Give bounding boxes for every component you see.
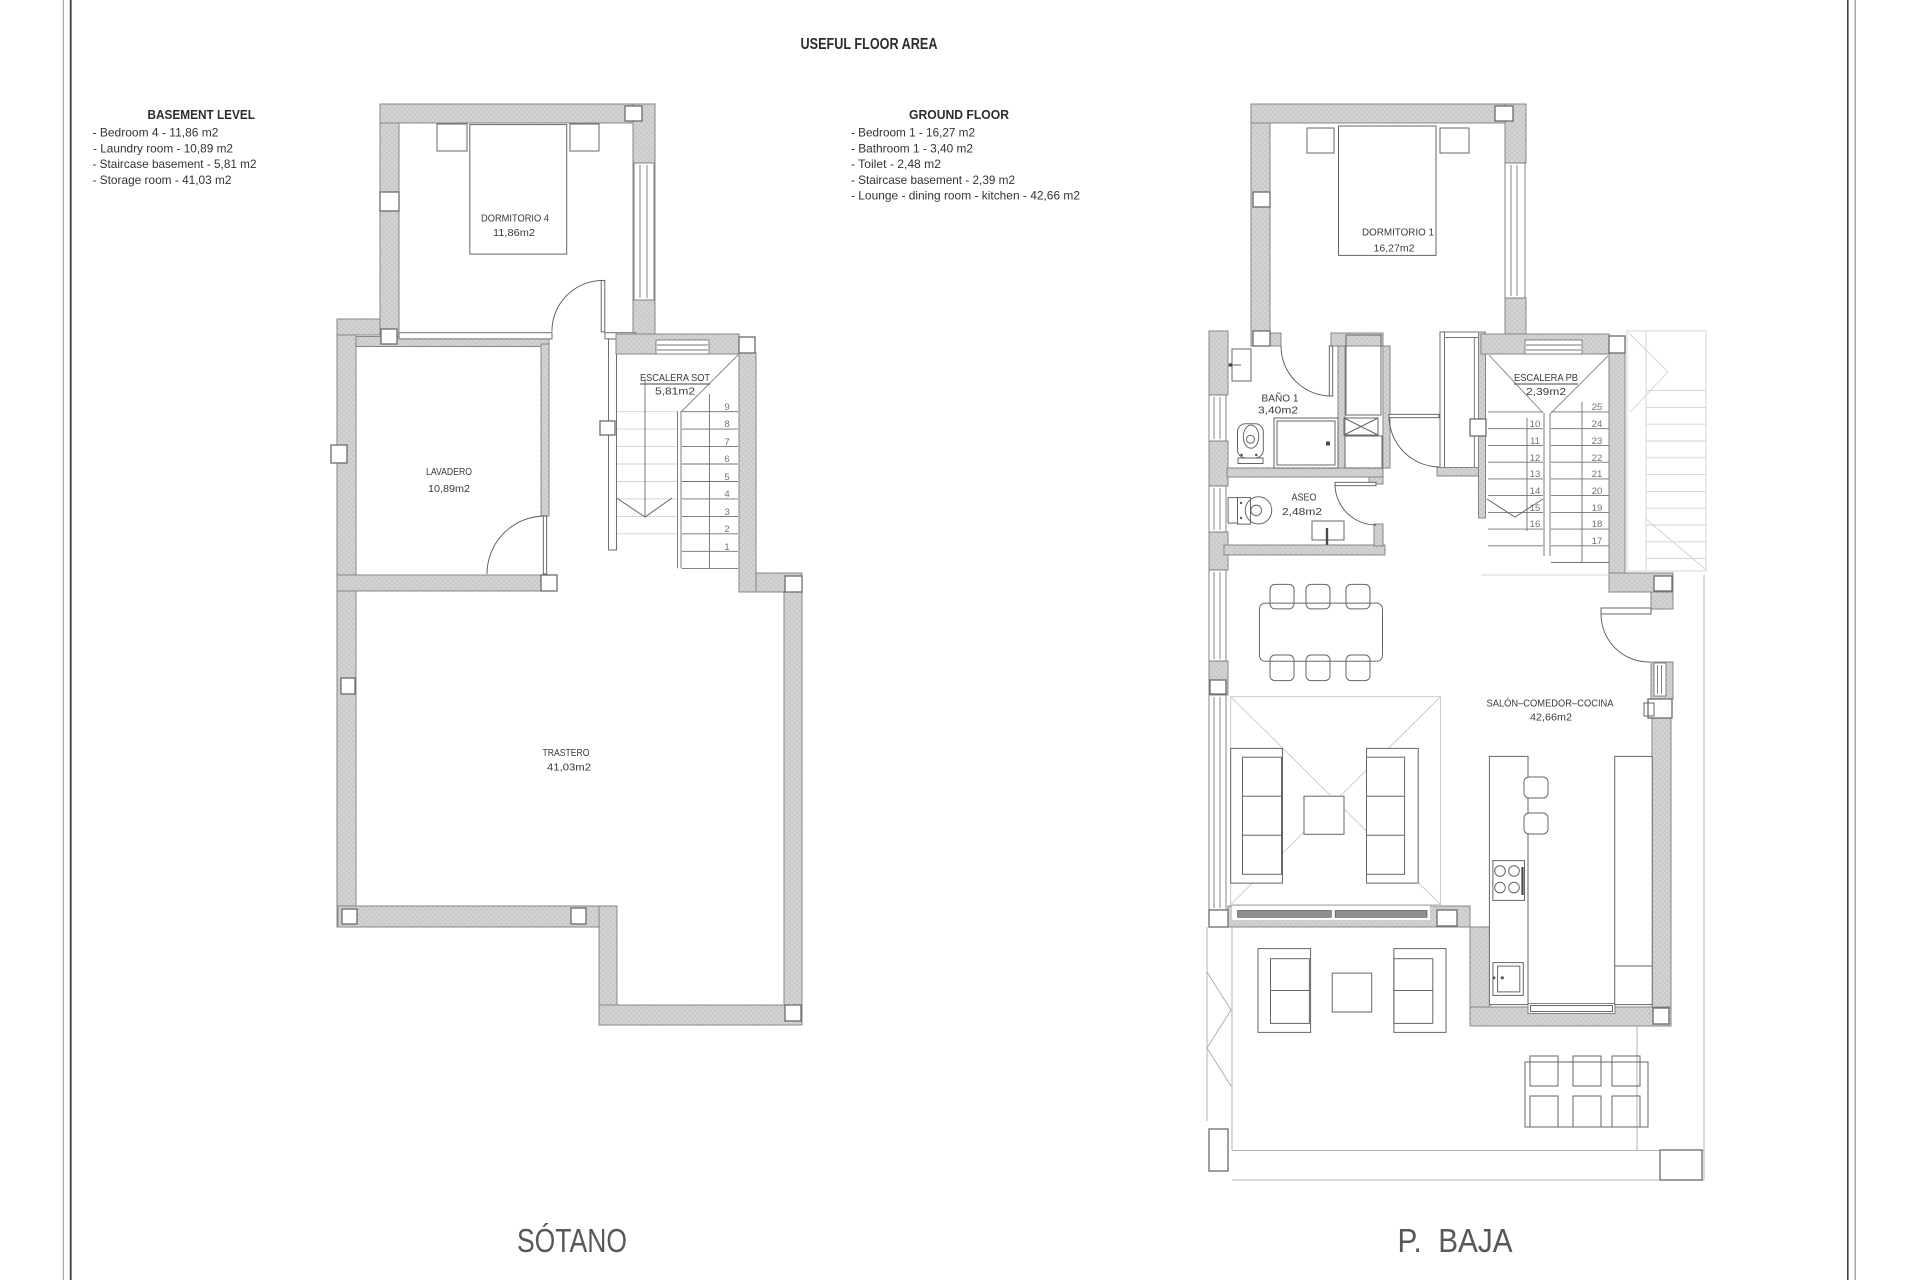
svg-text:11,86m2: 11,86m2 (493, 228, 535, 239)
svg-text:USEFUL FLOOR AREA: USEFUL FLOOR AREA (801, 36, 938, 53)
svg-text:3: 3 (724, 507, 729, 518)
svg-text:- Toilet - 2,48 m2: - Toilet - 2,48 m2 (851, 157, 941, 171)
svg-text:BAÑO 1: BAÑO 1 (1262, 392, 1299, 405)
svg-text:16,27m2: 16,27m2 (1374, 244, 1415, 255)
svg-text:8: 8 (724, 419, 729, 430)
svg-text:2,39m2: 2,39m2 (1526, 387, 1566, 398)
svg-text:13: 13 (1530, 469, 1541, 480)
svg-text:9: 9 (724, 402, 729, 413)
svg-text:ESCALERA SOT: ESCALERA SOT (640, 373, 711, 384)
svg-text:15: 15 (1530, 503, 1541, 514)
svg-text:5,81m2: 5,81m2 (655, 387, 695, 398)
svg-text:4: 4 (724, 489, 730, 500)
svg-text:- Bedroom 4 - 11,86 m2: - Bedroom 4 - 11,86 m2 (93, 126, 219, 140)
svg-text:23: 23 (1592, 436, 1603, 447)
svg-text:SÓTANO: SÓTANO (517, 1222, 627, 1259)
svg-text:- Laundry room - 10,89 m2: - Laundry room - 10,89 m2 (93, 141, 233, 155)
svg-text:18: 18 (1592, 519, 1603, 530)
svg-text:- Staircase basement - 5,81 m2: - Staircase basement - 5,81 m2 (93, 157, 257, 171)
svg-text:11: 11 (1530, 436, 1540, 447)
svg-text:P. BAJA: P. BAJA (1398, 1222, 1513, 1259)
svg-text:GROUND FLOOR: GROUND FLOOR (909, 107, 1010, 122)
svg-text:19: 19 (1592, 503, 1603, 514)
svg-text:12: 12 (1530, 453, 1541, 464)
svg-text:1: 1 (724, 542, 729, 553)
svg-text:16: 16 (1530, 519, 1541, 530)
svg-text:- Bathroom 1 - 3,40 m2: - Bathroom 1 - 3,40 m2 (851, 141, 973, 155)
svg-text:2,48m2: 2,48m2 (1282, 507, 1322, 518)
svg-text:TRASTERO: TRASTERO (543, 748, 590, 759)
svg-text:2: 2 (724, 524, 729, 535)
svg-text:21: 21 (1592, 469, 1603, 480)
svg-text:5: 5 (724, 472, 729, 483)
svg-text:ESCALERA PB: ESCALERA PB (1514, 373, 1578, 384)
svg-text:41,03m2: 41,03m2 (547, 763, 591, 774)
svg-text:14: 14 (1530, 486, 1541, 497)
svg-text:- Bedroom 1 - 16,27 m2: - Bedroom 1 - 16,27 m2 (851, 126, 975, 140)
svg-text:- Storage room - 41,03 m2: - Storage room - 41,03 m2 (93, 173, 232, 187)
svg-text:DORMITORIO 1: DORMITORIO 1 (1362, 228, 1434, 239)
svg-text:DORMITORIO 4: DORMITORIO 4 (481, 214, 549, 225)
svg-text:LAVADERO: LAVADERO (426, 467, 472, 478)
svg-text:SALÓN–COMEDOR–COCINA: SALÓN–COMEDOR–COCINA (1487, 697, 1614, 710)
svg-text:10: 10 (1530, 419, 1541, 430)
svg-text:ASEO: ASEO (1292, 493, 1317, 504)
svg-text:17: 17 (1592, 536, 1603, 547)
svg-text:22: 22 (1592, 453, 1603, 464)
svg-text:- Lounge - dining room - kitch: - Lounge - dining room - kitchen - 42,66… (851, 189, 1080, 203)
svg-text:20: 20 (1592, 486, 1603, 497)
svg-text:10,89m2: 10,89m2 (428, 484, 470, 495)
svg-text:42,66m2: 42,66m2 (1530, 713, 1572, 724)
svg-text:- Staircase basement - 2,39 m2: - Staircase basement - 2,39 m2 (851, 173, 1015, 187)
svg-text:7: 7 (724, 437, 729, 448)
svg-text:24: 24 (1592, 419, 1603, 430)
svg-text:3,40m2: 3,40m2 (1258, 406, 1298, 417)
svg-text:25: 25 (1592, 402, 1603, 413)
svg-text:6: 6 (724, 454, 729, 465)
svg-text:BASEMENT LEVEL: BASEMENT LEVEL (148, 107, 256, 122)
